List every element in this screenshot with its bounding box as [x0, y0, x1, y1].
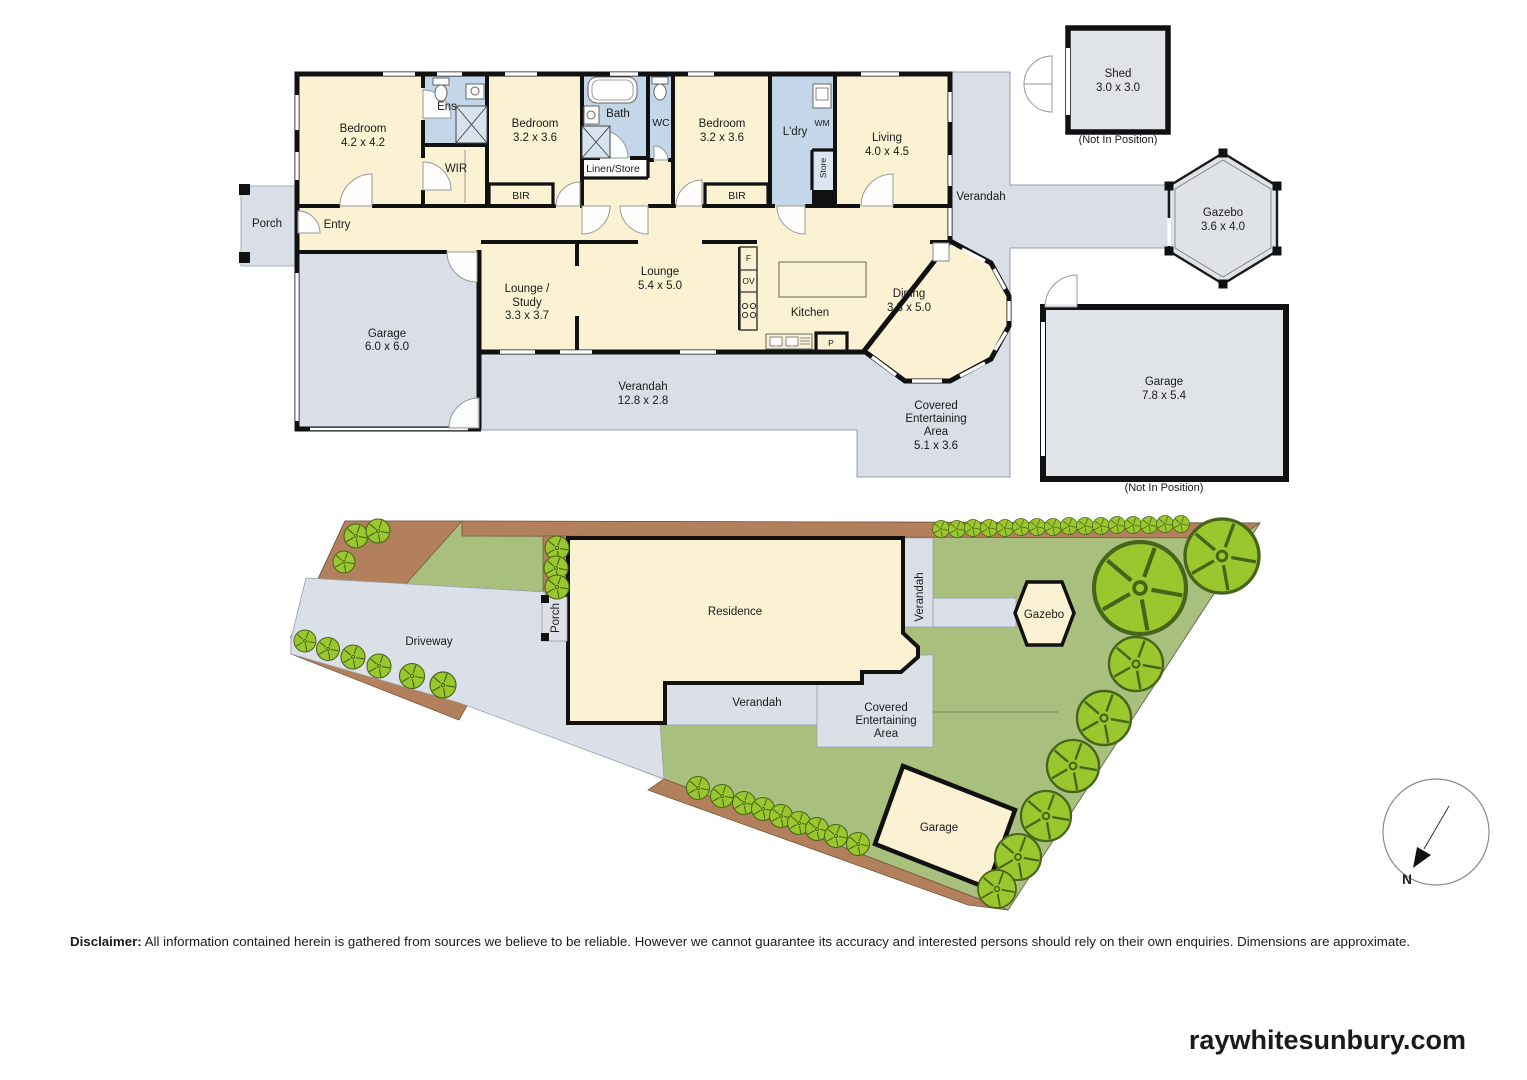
gazebo-path	[933, 598, 1016, 627]
compass: N	[1383, 779, 1489, 887]
disclaimer: Disclaimer: All information contained he…	[70, 934, 1410, 949]
bir2-label: BIR	[728, 190, 746, 202]
driveway-label: Driveway	[405, 636, 453, 648]
floor-plan: Porch Entry Bedroom 4.2 x 4.2 Ens WIR Be…	[239, 28, 1286, 494]
living-dims: 4.0 x 4.5	[865, 146, 909, 158]
site-porch-label: Porch	[550, 603, 562, 633]
floorplan-page: Porch Entry Bedroom 4.2 x 4.2 Ens WIR Be…	[0, 0, 1527, 1080]
covered-l2: Entertaining	[905, 413, 966, 425]
bedroom1-dims: 4.2 x 4.2	[341, 137, 385, 149]
floorplan-canvas: Porch Entry Bedroom 4.2 x 4.2 Ens WIR Be…	[0, 0, 1527, 1080]
shed-dims: 3.0 x 3.0	[1096, 82, 1140, 94]
residence-label: Residence	[708, 606, 762, 618]
porch-post	[239, 184, 250, 195]
store-label: Store	[818, 158, 828, 179]
site-verandah-side-label: Verandah	[914, 572, 926, 621]
porch-post	[239, 252, 250, 263]
living-label: Living	[872, 132, 902, 144]
lounge-label: Lounge	[641, 266, 679, 278]
shed	[1024, 28, 1168, 132]
bedroom1-label: Bedroom	[340, 123, 387, 135]
verandah-bottom-label: Verandah	[618, 381, 667, 393]
garage2-label: Garage	[1145, 376, 1183, 388]
site-garage-label: Garage	[920, 822, 958, 834]
bir1-label: BIR	[512, 190, 530, 202]
bedroom3-dims: 3.2 x 3.6	[700, 132, 744, 144]
porch-label: Porch	[252, 218, 282, 230]
wir-label: WIR	[445, 163, 467, 175]
site-porch-post	[541, 595, 549, 603]
site-covered-l3: Area	[874, 728, 899, 740]
north-label: N	[1402, 872, 1412, 887]
kitchen-label: Kitchen	[791, 307, 829, 319]
lounge-study-l2: Study	[512, 297, 542, 309]
lounge-dims: 5.4 x 5.0	[638, 280, 682, 292]
site-verandah-bottom-label: Verandah	[732, 697, 781, 709]
shed-note: (Not In Position)	[1079, 134, 1158, 146]
fridge-label: F	[746, 253, 751, 263]
covered-l3: Area	[924, 426, 949, 438]
verandah-bottom-dims: 12.8 x 2.8	[618, 395, 669, 407]
garage2-note: (Not In Position)	[1125, 482, 1204, 494]
site-porch-post	[541, 633, 549, 641]
website-logo: raywhitesunbury.com	[1189, 1025, 1466, 1055]
entry-label: Entry	[324, 219, 351, 231]
garage-label: Garage	[368, 328, 406, 340]
oven-label: OV	[742, 276, 755, 286]
disclaimer-text: All information contained herein is gath…	[142, 934, 1410, 949]
site-covered-l1: Covered	[864, 702, 907, 714]
ldry-label: L'dry	[783, 126, 808, 138]
wc-label: WC	[652, 117, 670, 129]
ens-label: Ens	[437, 101, 457, 113]
pantry-label: P	[828, 338, 834, 348]
wm-label: WM	[814, 118, 829, 128]
linen-label: Linen/Store	[586, 163, 640, 175]
wall-mass	[812, 190, 835, 205]
garage2-dims: 7.8 x 5.4	[1142, 390, 1187, 402]
bedroom2-label: Bedroom	[512, 118, 559, 130]
kitchen-island	[779, 262, 866, 297]
disclaimer-label: Disclaimer:	[70, 934, 142, 949]
bedroom3-label: Bedroom	[699, 118, 746, 130]
dining-dims: 3.3 x 5.0	[887, 302, 931, 314]
window-box	[933, 243, 949, 261]
gazebo-label: Gazebo	[1203, 207, 1243, 219]
site-covered-l2: Entertaining	[855, 715, 916, 727]
shed-label: Shed	[1105, 68, 1132, 80]
covered-dims: 5.1 x 3.6	[914, 440, 958, 452]
dining-label: Dining	[893, 288, 926, 300]
lounge-study-dims: 3.3 x 3.7	[505, 310, 549, 322]
verandah-right-label: Verandah	[956, 191, 1005, 203]
bedroom2-dims: 3.2 x 3.6	[513, 132, 557, 144]
site-plan: Driveway Porch Residence Verandah Gazebo…	[291, 516, 1260, 911]
gazebo-dims: 3.6 x 4.0	[1201, 221, 1245, 233]
lounge-study-l1: Lounge /	[505, 283, 551, 295]
site-gazebo-label: Gazebo	[1024, 609, 1064, 621]
garage-dims: 6.0 x 6.0	[365, 341, 409, 353]
covered-l1: Covered	[914, 400, 957, 412]
bath-label: Bath	[606, 108, 630, 120]
